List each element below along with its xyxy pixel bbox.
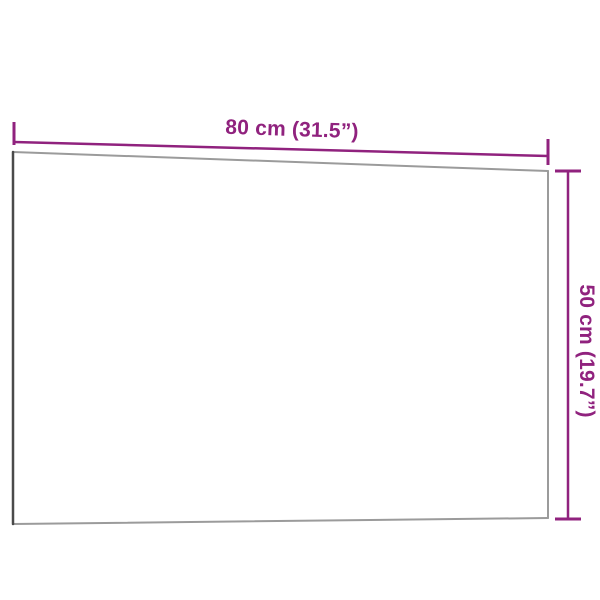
diagram-canvas (0, 0, 600, 600)
product-dimension-figure: 80 cm (31.5”) 50 cm (19.7”) (0, 0, 600, 600)
board-panel (13, 152, 548, 524)
width-dimension-label: 80 cm (31.5”) (225, 116, 359, 144)
height-dimension-label: 50 cm (19.7”) (574, 284, 598, 417)
